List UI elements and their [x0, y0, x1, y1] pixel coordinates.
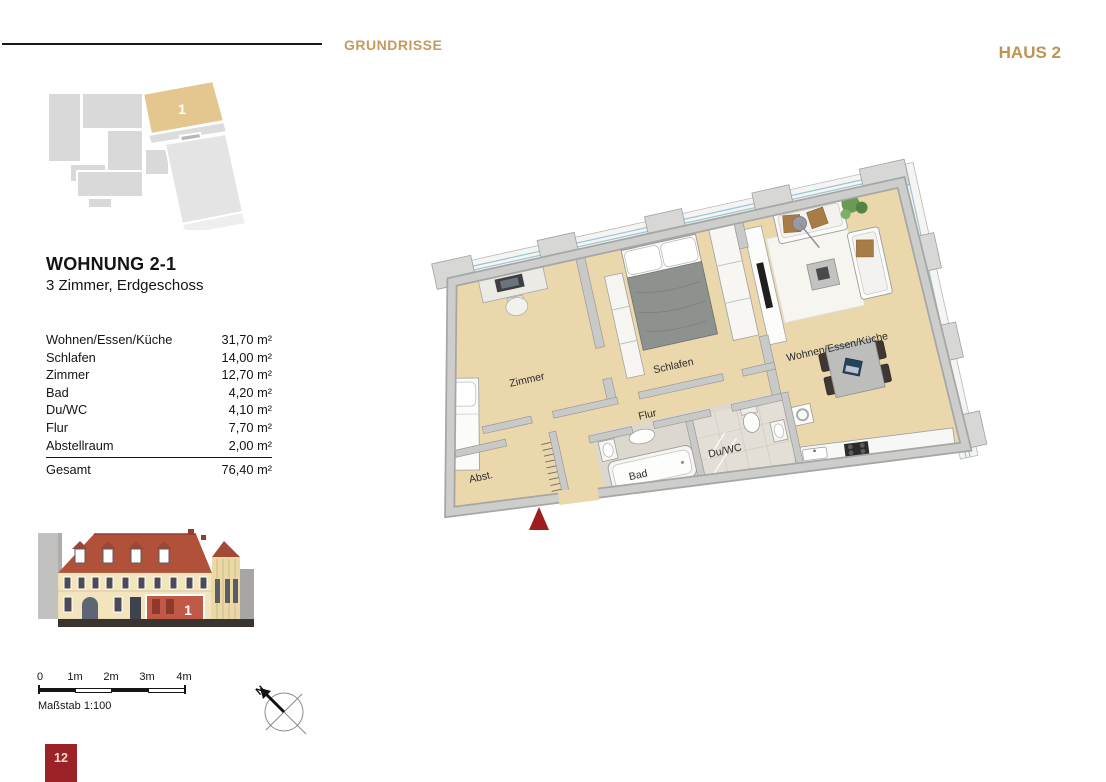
building-elevation: 1	[38, 527, 256, 629]
room-label: Schlafen	[46, 349, 96, 367]
scale-tick: 3m	[134, 671, 160, 683]
scale-segment	[38, 688, 75, 692]
compass: N	[254, 682, 316, 744]
room-label: Bad	[46, 384, 69, 402]
map-building	[165, 134, 243, 224]
scale-end-tick	[184, 685, 186, 694]
site-overview-map: 1	[30, 72, 260, 230]
area-table: Wohnen/Essen/Küche 31,70 m² Schlafen 14,…	[46, 331, 272, 479]
room-area: 4,20 m²	[229, 384, 272, 402]
table-row: Abstellraum 2,00 m²	[46, 437, 272, 455]
scale-tick: 2m	[98, 671, 124, 683]
scale-bar: 0 1m 2m 3m 4m Maßstab 1:100	[38, 671, 218, 719]
room-label: Abstellraum	[46, 437, 114, 455]
map-building	[88, 198, 112, 208]
scale-tick: 0	[27, 671, 53, 683]
scale-segment	[111, 688, 148, 692]
map-building	[48, 93, 81, 162]
building-label: HAUS 2	[999, 43, 1061, 63]
room-area: 31,70 m²	[221, 331, 272, 349]
table-row: Bad 4,20 m²	[46, 384, 272, 402]
room-label: Wohnen/Essen/Küche	[46, 331, 172, 349]
room-area: 2,00 m²	[229, 437, 272, 455]
room-area: 4,10 m²	[229, 401, 272, 419]
elevation-door	[130, 597, 141, 619]
room-area: 14,00 m²	[221, 349, 272, 367]
apartment-name: WOHNUNG 2-1	[46, 254, 176, 275]
page-number-badge: 12	[45, 744, 77, 782]
table-row: Wohnen/Essen/Küche 31,70 m²	[46, 331, 272, 349]
room-label: Zimmer	[46, 366, 89, 384]
scale-tick: 1m	[62, 671, 88, 683]
header-rule	[2, 43, 322, 45]
table-row: Zimmer 12,70 m²	[46, 366, 272, 384]
scale-tick: 4m	[171, 671, 197, 683]
table-row: Flur 7,70 m²	[46, 419, 272, 437]
elevation-base	[58, 619, 254, 627]
scale-segment	[148, 688, 185, 693]
room-area: 7,70 m²	[229, 419, 272, 437]
table-row: Schlafen 14,00 m²	[46, 349, 272, 367]
map-building	[145, 149, 169, 175]
total-area: 76,40 m²	[221, 461, 272, 479]
table-row: Du/WC 4,10 m²	[46, 401, 272, 419]
section-title: GRUNDRISSE	[344, 37, 442, 53]
room-label: Flur	[46, 419, 68, 437]
room-area: 12,70 m²	[221, 366, 272, 384]
elevation-right-edge	[240, 569, 254, 619]
coffee-table-object	[816, 266, 830, 280]
entrance-marker	[529, 507, 549, 530]
map-building	[107, 130, 143, 174]
total-label: Gesamt	[46, 461, 91, 479]
scale-caption: Maßstab 1:100	[38, 700, 111, 712]
room-label: Du/WC	[46, 401, 87, 419]
table-total-row: Gesamt 76,40 m²	[46, 457, 272, 479]
scale-segment	[75, 688, 112, 693]
page-number: 12	[54, 751, 68, 765]
elevation-arch-door	[82, 597, 98, 619]
laptop	[843, 358, 863, 376]
apartment-description: 3 Zimmer, Erdgeschoss	[46, 277, 204, 294]
north-arrow	[266, 694, 284, 712]
floor-plan: Zimmer Schlafen Flur Abst. Bad Du/WC Woh…	[430, 158, 990, 556]
map-unit-number: 1	[178, 101, 186, 117]
map-building	[82, 93, 143, 129]
map-building	[77, 171, 143, 197]
elevation-unit-number: 1	[184, 602, 192, 618]
